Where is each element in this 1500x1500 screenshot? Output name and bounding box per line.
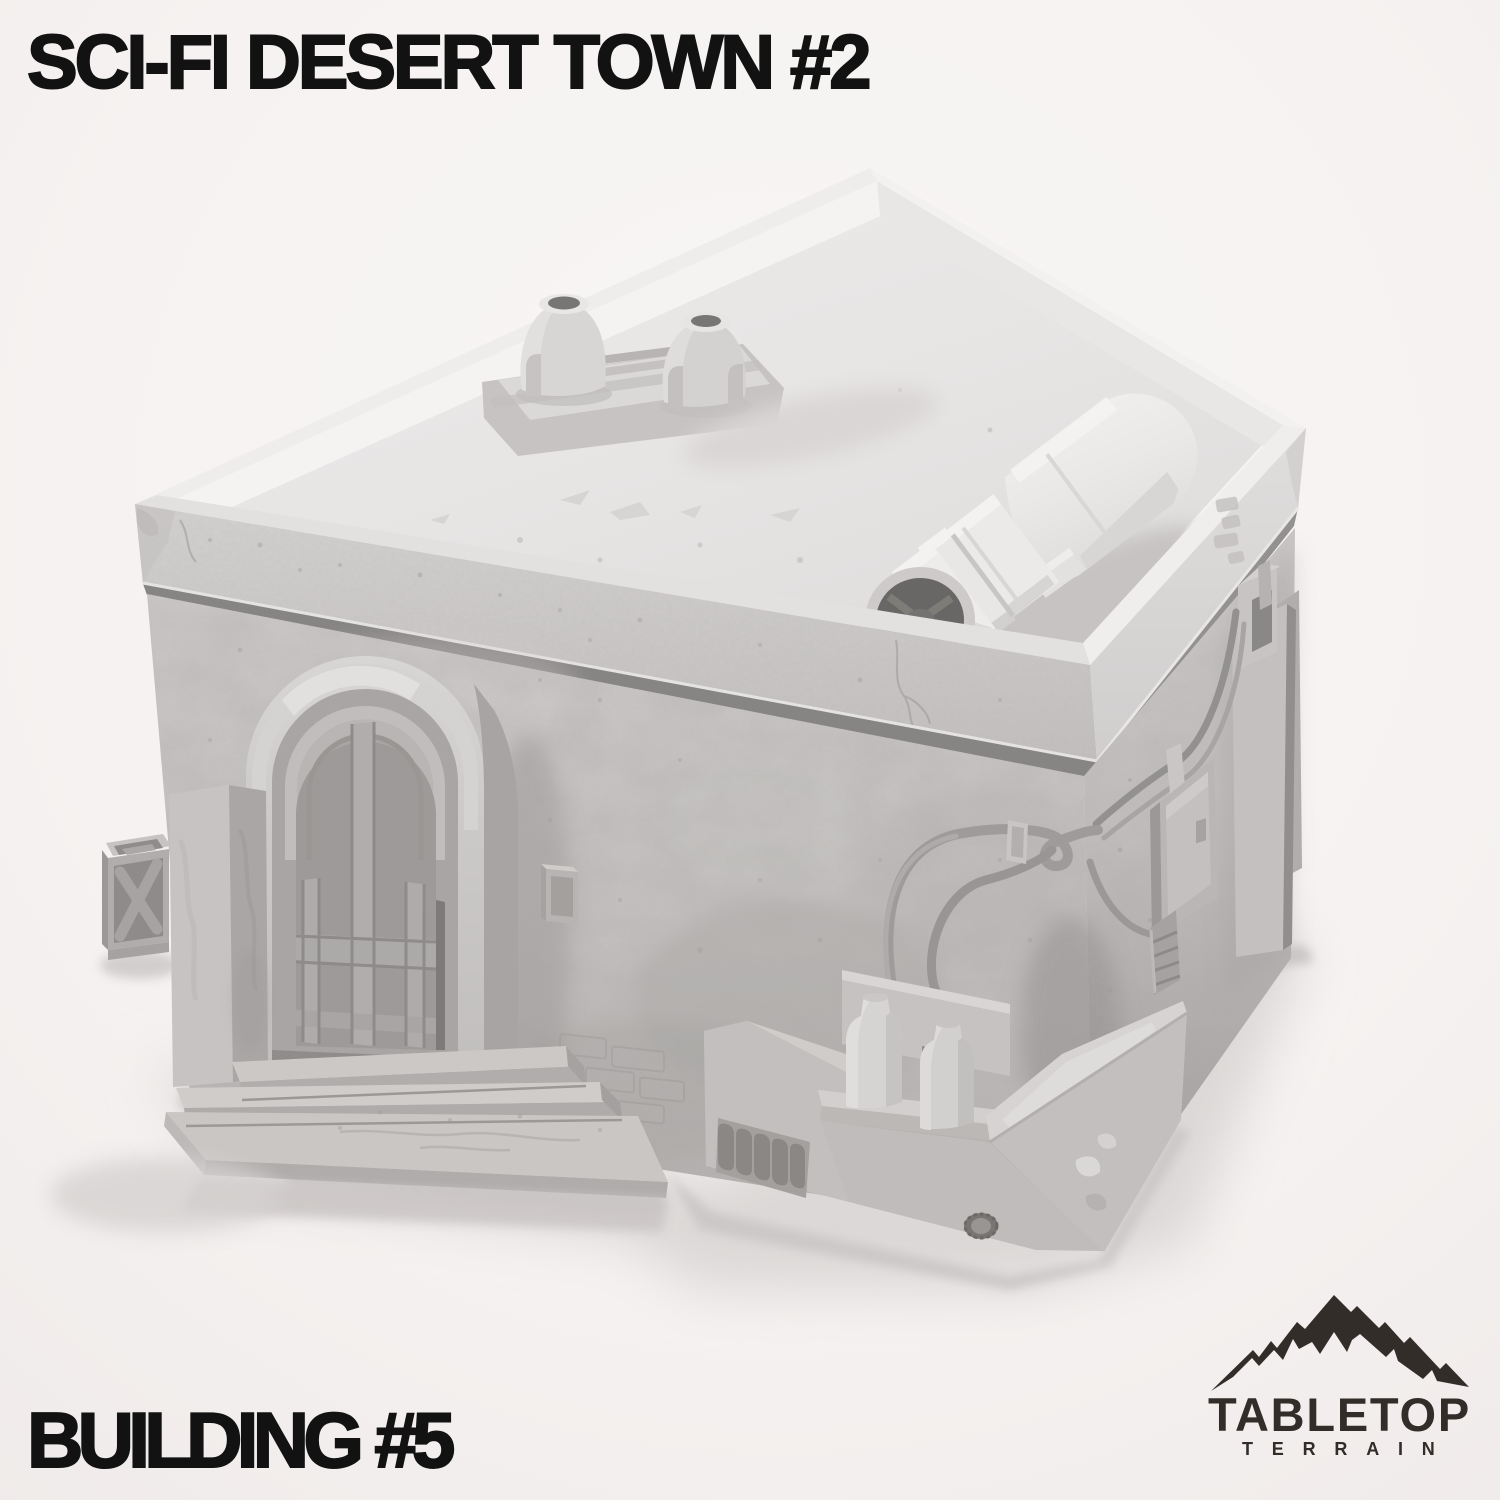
svg-text:TERRAIN: TERRAIN (1242, 1439, 1454, 1459)
svg-text:BUILDING #5: BUILDING #5 (27, 1396, 454, 1484)
svg-text:SCI-FI DESERT TOWN #2: SCI-FI DESERT TOWN #2 (27, 20, 869, 105)
svg-text:TABLETOP: TABLETOP (1208, 1388, 1471, 1441)
